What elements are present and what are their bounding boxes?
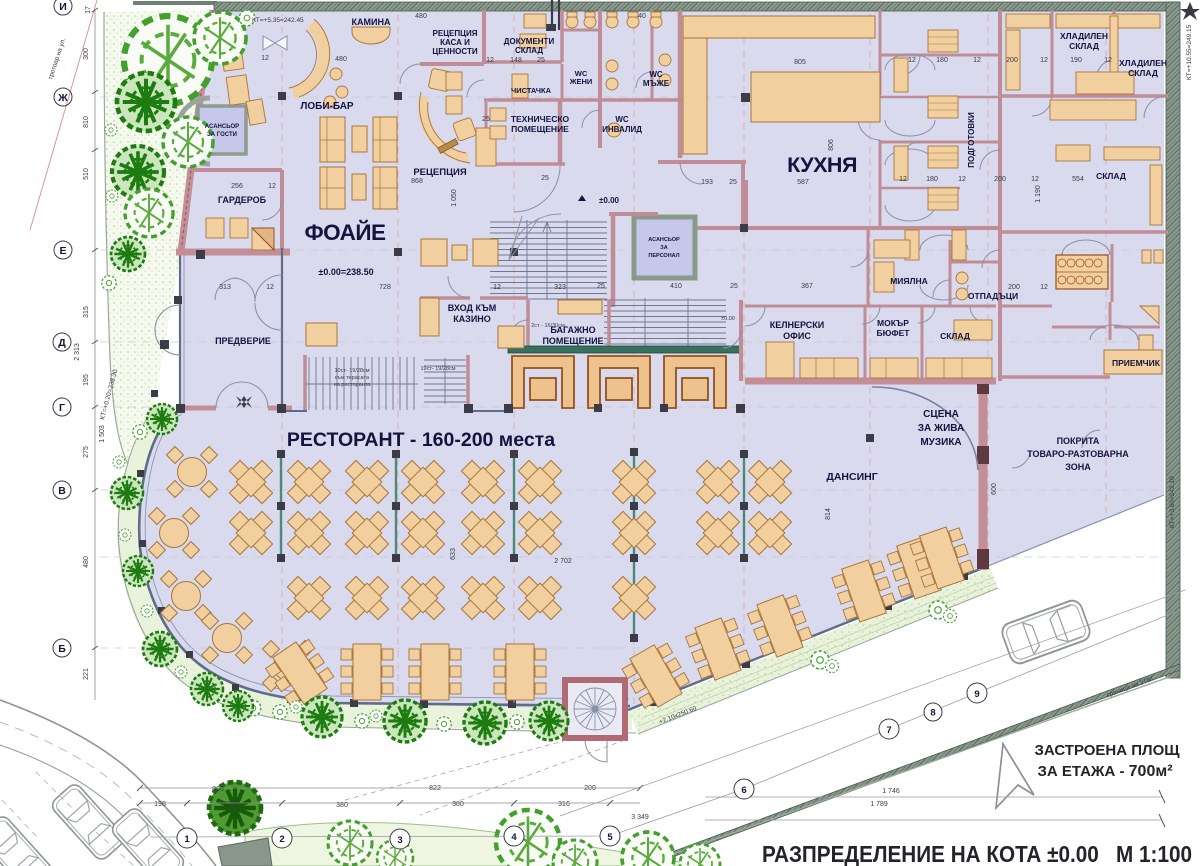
svg-text:1 050: 1 050 [451, 189, 458, 207]
svg-text:180: 180 [926, 176, 938, 183]
svg-text:КТ=+10.55=249.15: КТ=+10.55=249.15 [1186, 24, 1193, 80]
svg-text:275: 275 [83, 446, 90, 458]
svg-text:12: 12 [908, 57, 916, 64]
svg-text:510: 510 [83, 168, 90, 180]
svg-text:1 190: 1 190 [1035, 185, 1042, 203]
svg-text:300: 300 [83, 48, 90, 60]
svg-text:814: 814 [825, 508, 832, 520]
svg-text:АСАНСЬОР: АСАНСЬОР [648, 237, 680, 243]
svg-text:12: 12 [958, 176, 966, 183]
svg-text:40: 40 [638, 13, 646, 20]
svg-text:СЦЕНА: СЦЕНА [923, 409, 959, 420]
svg-text:ДОКУМЕНТИ: ДОКУМЕНТИ [504, 37, 555, 46]
svg-text:КЕЛНЕРСКИ: КЕЛНЕРСКИ [770, 320, 825, 330]
svg-text:ЗАСТРОЕНА ПЛОЩ: ЗАСТРОЕНА ПЛОЩ [1034, 742, 1180, 759]
svg-text:Е: Е [59, 245, 66, 257]
svg-text:200: 200 [994, 176, 1006, 183]
svg-text:25: 25 [541, 175, 549, 182]
svg-text:25: 25 [729, 179, 737, 186]
svg-text:12: 12 [486, 57, 494, 64]
svg-text:СКЛАД: СКЛАД [940, 331, 970, 341]
svg-text:2 702: 2 702 [554, 558, 572, 565]
svg-text:410: 410 [670, 283, 682, 290]
svg-text:ЗА ЖИВА: ЗА ЖИВА [918, 423, 964, 434]
svg-text:към терасата: към терасата [335, 375, 370, 381]
svg-text:ЦЕННОСТИ: ЦЕННОСТИ [432, 47, 477, 56]
svg-text:ЗА ЕТАЖА - 700м²: ЗА ЕТАЖА - 700м² [1037, 763, 1172, 780]
svg-text:ПРЕДВЕРИЕ: ПРЕДВЕРИЕ [215, 336, 271, 346]
svg-text:±0.00=238.50: ±0.00=238.50 [318, 267, 373, 277]
svg-text:728: 728 [379, 284, 391, 291]
svg-text:313: 313 [219, 284, 231, 291]
svg-text:198: 198 [154, 801, 166, 808]
svg-text:WC: WC [615, 115, 629, 124]
svg-text:323: 323 [554, 284, 566, 291]
svg-text:3 349: 3 349 [631, 814, 649, 821]
svg-text:ХЛАДИЛЕН: ХЛАДИЛЕН [1060, 31, 1108, 41]
svg-text:193: 193 [701, 179, 713, 186]
svg-text:СКЛАД: СКЛАД [1096, 171, 1126, 181]
svg-text:СКЛАД: СКЛАД [1069, 41, 1099, 51]
svg-text:ПОМЕЩЕНИЕ: ПОМЕЩЕНИЕ [542, 336, 603, 346]
svg-text:12: 12 [1040, 57, 1048, 64]
svg-text:СКЛАД: СКЛАД [515, 46, 543, 55]
svg-text:12: 12 [1031, 176, 1039, 183]
svg-text:±0.00: ±0.00 [721, 316, 735, 322]
svg-text:12: 12 [1040, 284, 1048, 291]
svg-text:316: 316 [558, 801, 570, 808]
svg-text:ЗОНА: ЗОНА [1065, 462, 1091, 472]
svg-text:2ст - 16/30см: 2ст - 16/30см [531, 323, 565, 329]
svg-text:ПЕРСОНАЛ: ПЕРСОНАЛ [648, 253, 679, 259]
svg-text:ИНВАЛИД: ИНВАЛИД [602, 125, 642, 134]
svg-text:9: 9 [974, 689, 979, 700]
svg-text:195: 195 [83, 374, 90, 386]
svg-text:РЕЦЕПЦИЯ: РЕЦЕПЦИЯ [413, 167, 467, 178]
svg-text:ДАНСИНГ: ДАНСИНГ [826, 471, 877, 483]
svg-text:6: 6 [741, 785, 746, 796]
svg-text:ТОВАРО-РАЗТОВАРНА: ТОВАРО-РАЗТОВАРНА [1027, 449, 1129, 459]
svg-text:10ст- 19/28см: 10ст- 19/28см [334, 368, 369, 374]
svg-text:ВХОД КЪМ: ВХОД КЪМ [448, 303, 497, 313]
svg-text:8: 8 [930, 708, 935, 719]
svg-text:ПРИЕМЧИК: ПРИЕМЧИК [1112, 358, 1161, 368]
svg-text:ПОДГОТОВКИ: ПОДГОТОВКИ [967, 112, 976, 168]
svg-text:И: И [59, 1, 67, 13]
svg-text:256: 256 [231, 183, 243, 190]
svg-text:810: 810 [83, 116, 90, 128]
svg-text:190: 190 [1070, 57, 1082, 64]
svg-text:17: 17 [85, 6, 92, 14]
svg-text:СКЛАД: СКЛАД [1128, 68, 1158, 78]
svg-text:25: 25 [537, 57, 545, 64]
svg-text:805: 805 [794, 59, 806, 66]
svg-text:380: 380 [452, 801, 464, 808]
svg-text:1 789: 1 789 [870, 801, 888, 808]
svg-text:КАМИНА: КАМИНА [352, 17, 391, 27]
svg-text:БЮФЕТ: БЮФЕТ [877, 328, 911, 338]
svg-text:1: 1 [184, 834, 190, 845]
svg-text:221: 221 [83, 668, 90, 680]
svg-text:ПОКРИТА: ПОКРИТА [1057, 436, 1100, 446]
svg-text:367: 367 [801, 283, 813, 290]
svg-text:КАСА И: КАСА И [440, 38, 470, 47]
svg-text:КТ=+3.60=242.10: КТ=+3.60=242.10 [1169, 476, 1176, 528]
svg-text:7: 7 [886, 725, 891, 736]
svg-text:25: 25 [730, 283, 738, 290]
svg-text:ХЛАДИЛЕН: ХЛАДИЛЕН [1119, 58, 1167, 68]
svg-text:12: 12 [973, 57, 981, 64]
svg-text:Г: Г [59, 402, 65, 414]
svg-text:860: 860 [212, 786, 224, 793]
svg-text:5: 5 [607, 832, 613, 843]
svg-text:на ресторанта: на ресторанта [334, 382, 372, 388]
svg-text:4: 4 [511, 832, 517, 843]
svg-text:19ст- 19/28см: 19ст- 19/28см [420, 366, 455, 372]
svg-text:АСАНСЬОР: АСАНСЬОР [205, 124, 239, 130]
svg-text:РАЗПРЕДЕЛЕНИЕ НА КОТА ±0.00: РАЗПРЕДЕЛЕНИЕ НА КОТА ±0.00 М 1:100 [762, 841, 1192, 866]
svg-text:КУХНЯ: КУХНЯ [787, 153, 857, 177]
svg-text:ОТПАДЪЦИ: ОТПАДЪЦИ [968, 291, 1018, 301]
svg-text:480: 480 [335, 56, 347, 63]
svg-text:КТ=+5.35=242.45: КТ=+5.35=242.45 [252, 17, 304, 24]
svg-text:Ж: Ж [57, 92, 68, 104]
svg-text:600: 600 [991, 483, 998, 495]
svg-text:ПОМЕЩЕНИЕ: ПОМЕЩЕНИЕ [511, 124, 569, 134]
svg-text:2: 2 [279, 834, 284, 845]
svg-text:ЖЕНИ: ЖЕНИ [569, 77, 593, 86]
svg-text:315: 315 [227, 801, 239, 808]
svg-text:200: 200 [1006, 57, 1018, 64]
svg-text:806: 806 [828, 139, 835, 151]
svg-text:ГАРДЕРОБ: ГАРДЕРОБ [218, 195, 267, 205]
svg-text:WC: WC [649, 70, 663, 79]
svg-text:МИЯЛНА: МИЯЛНА [890, 276, 928, 286]
svg-text:587: 587 [797, 179, 809, 186]
svg-text:РЕСТОРАНТ - 160-200 места: РЕСТОРАНТ - 160-200 места [287, 429, 555, 451]
svg-text:180: 180 [936, 57, 948, 64]
svg-text:КАЗИНО: КАЗИНО [453, 314, 491, 324]
svg-text:480: 480 [415, 13, 427, 20]
svg-text:Д: Д [58, 337, 66, 349]
svg-text:РЕЦЕПЦИЯ: РЕЦЕПЦИЯ [433, 29, 478, 38]
svg-text:822: 822 [429, 785, 441, 792]
svg-text:МУЗИКА: МУЗИКА [920, 437, 961, 448]
svg-text:315: 315 [83, 306, 90, 318]
svg-text:Б: Б [58, 643, 66, 655]
svg-text:868: 868 [411, 178, 423, 185]
svg-text:ОФИС: ОФИС [783, 331, 811, 341]
svg-text:200: 200 [1008, 284, 1020, 291]
svg-text:25: 25 [597, 283, 605, 290]
svg-text:ЗА: ЗА [660, 245, 667, 251]
svg-text:1 746: 1 746 [882, 788, 900, 795]
svg-text:12: 12 [899, 176, 907, 183]
svg-text:ФОАЙЕ: ФОАЙЕ [304, 220, 386, 245]
svg-text:12: 12 [268, 183, 276, 190]
svg-text:ЧИСТАЧКА: ЧИСТАЧКА [511, 86, 552, 95]
svg-text:ЗА ГОСТИ: ЗА ГОСТИ [207, 132, 237, 138]
svg-text:12: 12 [266, 284, 274, 291]
svg-text:25: 25 [482, 116, 490, 123]
svg-text:3: 3 [397, 835, 402, 846]
svg-text:12: 12 [1104, 57, 1112, 64]
svg-text:200: 200 [584, 785, 596, 792]
svg-text:В: В [58, 485, 66, 497]
svg-text:1 503: 1 503 [99, 425, 106, 443]
svg-text:2 313: 2 313 [74, 343, 81, 361]
svg-text:МЪЖЕ: МЪЖЕ [643, 79, 670, 88]
svg-text:МОКЪР: МОКЪР [877, 318, 909, 328]
svg-text:12: 12 [261, 55, 269, 62]
svg-text:±0.00: ±0.00 [599, 196, 620, 205]
svg-text:ТЕХНИЧЕСКО: ТЕХНИЧЕСКО [511, 114, 570, 124]
svg-text:148: 148 [510, 57, 522, 64]
svg-text:480: 480 [83, 556, 90, 568]
svg-text:633: 633 [450, 548, 457, 560]
svg-text:ЛОБИ-БАР: ЛОБИ-БАР [300, 101, 354, 112]
svg-text:12: 12 [493, 284, 501, 291]
svg-text:554: 554 [1072, 176, 1084, 183]
